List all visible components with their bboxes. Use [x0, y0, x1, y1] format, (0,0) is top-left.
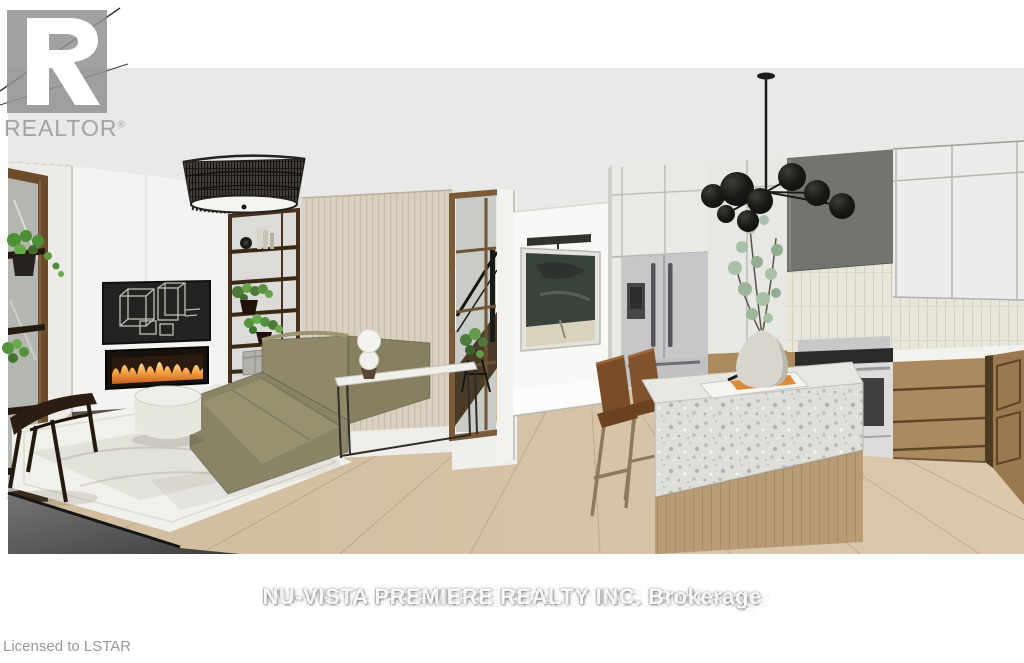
- realtor-label: REALTOR®: [4, 115, 134, 142]
- abstract-line-art-tv: [103, 281, 210, 344]
- realtor-watermark: REALTOR®: [4, 0, 134, 130]
- fridge-cabinet-wall: [612, 162, 708, 390]
- realtor-r-glyph: [7, 10, 107, 113]
- brokerage-watermark-ghost: NU-VISTA PREMIERE REALTY INC. Brokerage: [8, 586, 1024, 612]
- linear-electric-fireplace: [106, 347, 208, 389]
- realtor-logo-icon: [7, 10, 107, 113]
- listing-photo-canvas: REALTOR® NU-VISTA PREMIERE REALTY INC. B…: [0, 0, 1024, 663]
- round-ottoman: [132, 386, 204, 447]
- brokerage-watermark: NU-VISTA PREMIERE REALTY INC. Brokerage …: [0, 584, 1024, 610]
- registered-mark: ®: [118, 119, 126, 130]
- rattan-drum-pendant: [183, 156, 305, 213]
- rendering-image: [0, 0, 1024, 663]
- framed-abstract-art: [521, 248, 600, 351]
- licensed-to-lstar-label: Licensed to LSTAR: [3, 638, 131, 655]
- upper-cabinets-right: [893, 141, 1024, 300]
